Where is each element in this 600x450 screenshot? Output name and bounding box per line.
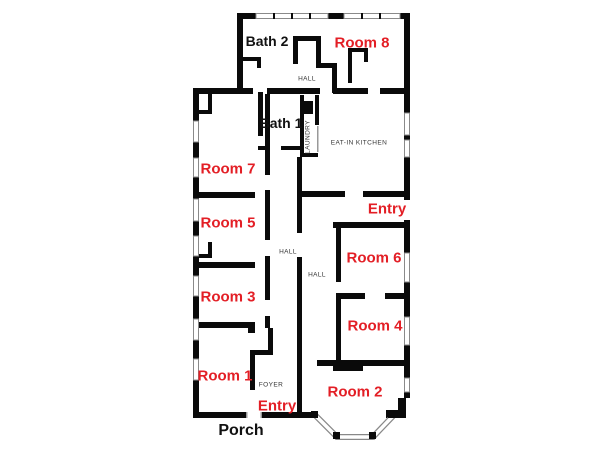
laundry-label: LAUNDRY (305, 120, 312, 154)
interior-wall-central-part (297, 257, 302, 412)
bay-window-part (369, 432, 376, 439)
interior-wall-left-part (248, 328, 255, 333)
interior-wall-right-part (385, 293, 404, 299)
entry-front-label: Entry (258, 398, 296, 415)
interior-wall-left-part (265, 94, 270, 175)
interior-wall-right-part (333, 222, 410, 228)
interior-wall-right-part (336, 293, 341, 360)
interior-wall-right-part (341, 293, 365, 299)
exterior-wall-part (404, 13, 410, 200)
room-7-label: Room 7 (200, 161, 255, 178)
floor-plan-drawing (0, 0, 600, 450)
windows-part (194, 276, 199, 296)
hall-upper-label: HALL (298, 76, 316, 83)
interior-wall-upper-part (348, 48, 352, 83)
bay-window-part (333, 432, 340, 439)
windows-part (194, 158, 199, 177)
hall-left-label: HALL (279, 249, 297, 256)
interior-wall-upper-part (332, 63, 337, 93)
bay-window-part (388, 411, 395, 418)
room-4-label: Room 4 (347, 318, 402, 335)
bay-window (311, 411, 395, 439)
bath-2-label: Bath 2 (246, 33, 289, 49)
floor-plan: Room 8 Room 7 Room 5 Room 3 Room 1 Room … (0, 0, 600, 450)
windows-part (194, 121, 199, 142)
exterior-wall-part (404, 220, 410, 398)
window-ticks-part (361, 13, 363, 19)
window-ticks-part (273, 13, 275, 19)
interior-wall-right (302, 191, 410, 371)
interior-wall-left-part (199, 110, 212, 114)
door-jambs-part (246, 412, 248, 418)
windows-part (194, 199, 199, 221)
upper-body-wall-part (303, 88, 320, 94)
interior-wall-left-part (265, 256, 270, 300)
windows-part (405, 253, 410, 282)
exterior-wall-part (237, 13, 243, 90)
upper-body-wall-part (193, 88, 253, 94)
interior-wall-right-part (302, 191, 345, 197)
foyer-label: FOYER (259, 382, 283, 389)
windows-part (405, 378, 410, 392)
interior-wall-left-part (265, 190, 270, 240)
interior-wall-central (297, 157, 302, 412)
upper-body-wall-part (333, 88, 368, 94)
room-8-label: Room 8 (334, 35, 389, 52)
bay-window-part (311, 411, 318, 418)
interior-wall-right-part (333, 360, 363, 371)
interior-wall-left-part (265, 316, 270, 328)
porch-label: Porch (218, 422, 263, 440)
windows-part (194, 236, 199, 256)
window-ticks-part (379, 13, 381, 19)
windows-part (405, 113, 410, 135)
windows-part (194, 319, 199, 340)
windows-part (405, 140, 410, 157)
window-ticks-part (291, 13, 293, 19)
upper-body-wall-part (380, 88, 410, 94)
interior-wall-left-part (208, 94, 212, 112)
interior-wall-left-part (193, 262, 255, 268)
entry-side-label: Entry (368, 201, 406, 218)
interior-wall-right-part (317, 360, 410, 366)
interior-wall-left-part (193, 322, 255, 328)
upper-body-wall-part (267, 88, 303, 94)
interior-wall-upper-part (257, 57, 261, 68)
bath-1-label: Bath 1 (260, 115, 303, 131)
room-2-label: Room 2 (327, 384, 382, 401)
upper-body-wall (193, 88, 410, 94)
door-jambs-part (317, 126, 319, 152)
interior-wall-right-part (363, 191, 410, 197)
room-3-label: Room 3 (200, 289, 255, 306)
windows-part (405, 317, 410, 345)
interior-wall-right-part (336, 228, 341, 282)
interior-wall-left-part (193, 192, 255, 198)
interior-wall-central-part (297, 157, 302, 233)
room-1-label: Room 1 (197, 368, 252, 385)
hall-right-label: HALL (308, 272, 326, 279)
window-ticks-part (309, 13, 311, 19)
interior-wall-left-part (315, 95, 319, 125)
interior-wall-left-part (199, 254, 211, 258)
windows-part (344, 14, 400, 19)
eat-in-kitchen-label: EAT-IN KITCHEN (331, 140, 387, 147)
exterior-wall-part (193, 412, 247, 418)
room-6-label: Room 6 (346, 250, 401, 267)
room-5-label: Room 5 (200, 215, 255, 232)
